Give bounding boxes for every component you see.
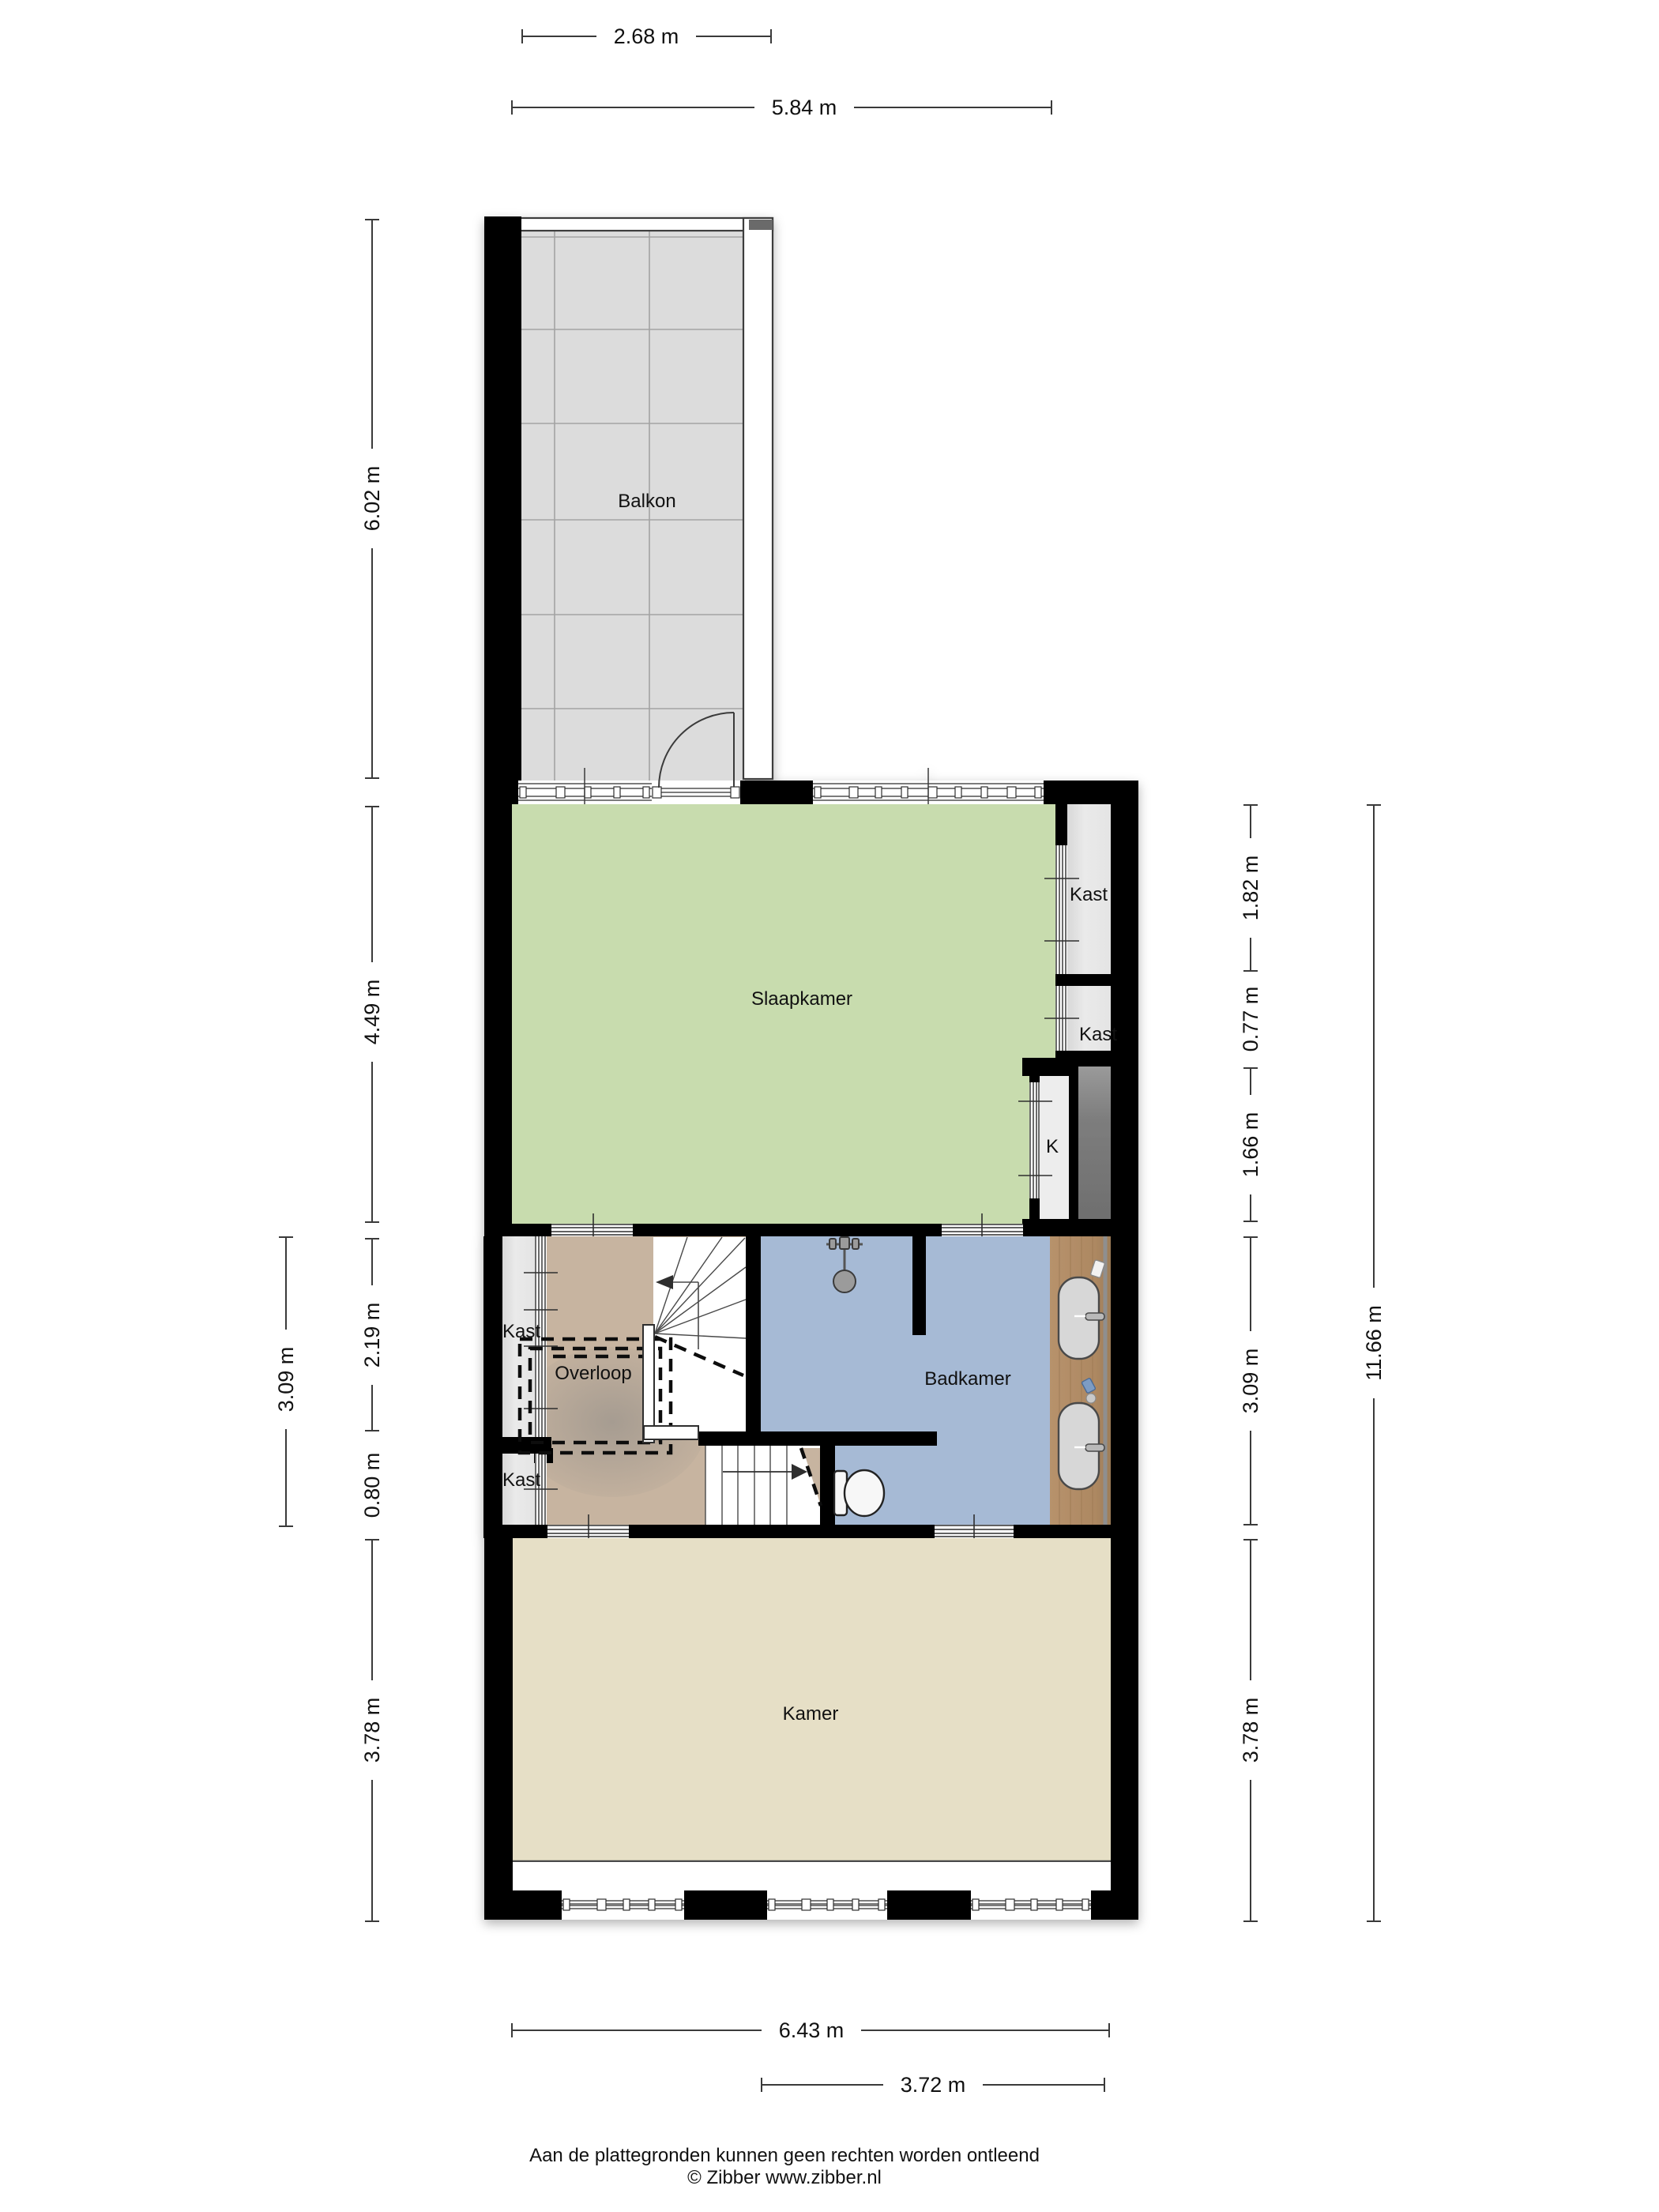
svg-text:4.49 m: 4.49 m <box>360 980 384 1045</box>
svg-text:2.68 m: 2.68 m <box>614 24 679 48</box>
svg-text:3.78 m: 3.78 m <box>360 1698 384 1763</box>
svg-text:2.19 m: 2.19 m <box>360 1303 384 1368</box>
svg-text:0.77 m: 0.77 m <box>1239 987 1262 1052</box>
svg-text:Kamer: Kamer <box>783 1703 839 1725</box>
svg-text:© Zibber www.zibber.nl: © Zibber www.zibber.nl <box>687 2167 882 2188</box>
svg-text:1.82 m: 1.82 m <box>1239 856 1262 921</box>
svg-text:3.78 m: 3.78 m <box>1239 1698 1262 1763</box>
svg-text:Badkamer: Badkamer <box>924 1368 1010 1390</box>
svg-text:Overloop: Overloop <box>555 1363 631 1384</box>
svg-text:Balkon: Balkon <box>618 491 675 512</box>
svg-text:1.66 m: 1.66 m <box>1239 1112 1262 1178</box>
svg-text:Kast: Kast <box>502 1469 540 1491</box>
svg-text:Aan de plattegronden kunnen ge: Aan de plattegronden kunnen geen rechten… <box>529 2145 1040 2166</box>
svg-text:3.72 m: 3.72 m <box>901 2073 966 2097</box>
svg-text:K: K <box>1046 1136 1059 1157</box>
svg-text:Slaapkamer: Slaapkamer <box>751 988 852 1010</box>
svg-text:6.43 m: 6.43 m <box>779 2018 845 2042</box>
svg-text:3.09 m: 3.09 m <box>274 1347 298 1413</box>
svg-text:11.66 m: 11.66 m <box>1362 1305 1386 1381</box>
svg-text:Kast: Kast <box>1070 884 1108 905</box>
svg-text:3.09 m: 3.09 m <box>1239 1349 1262 1414</box>
svg-text:Kast: Kast <box>502 1321 540 1342</box>
svg-text:0.80 m: 0.80 m <box>360 1453 384 1518</box>
svg-text:6.02 m: 6.02 m <box>360 466 384 532</box>
svg-text:5.84 m: 5.84 m <box>772 96 837 119</box>
svg-text:Kast: Kast <box>1079 1024 1117 1045</box>
